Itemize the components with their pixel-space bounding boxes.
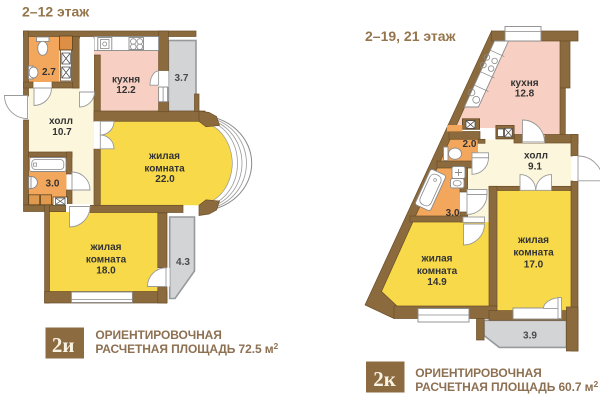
svg-text:комната: комната [86,255,127,266]
svg-text:комната: комната [144,164,185,175]
svg-text:жилая: жилая [421,254,453,265]
svg-text:9.1: 9.1 [528,162,542,173]
svg-text:22.0: 22.0 [155,174,175,185]
svg-text:3.9: 3.9 [523,331,537,342]
svg-text:2.0: 2.0 [463,139,477,150]
svg-text:3.0: 3.0 [446,208,460,219]
svg-text:14.9: 14.9 [427,277,447,288]
svg-text:2.7: 2.7 [42,67,56,78]
svg-text:РАСЧЕТНАЯ ПЛОЩАДЬ 72.5 м2: РАСЧЕТНАЯ ПЛОЩАДЬ 72.5 м2 [95,341,278,356]
svg-text:3.0: 3.0 [46,179,60,190]
svg-text:12.8: 12.8 [515,89,535,100]
svg-text:12.2: 12.2 [116,85,136,96]
svg-text:2–19, 21 этаж: 2–19, 21 этаж [365,28,457,44]
svg-text:3.7: 3.7 [175,73,189,84]
svg-text:холл: холл [524,151,548,162]
svg-text:18.0: 18.0 [96,266,116,277]
svg-text:17.0: 17.0 [524,260,544,271]
svg-text:РАСЧЕТНАЯ ПЛОЩАДЬ 60.7 м2: РАСЧЕТНАЯ ПЛОЩАДЬ 60.7 м2 [415,379,598,394]
svg-text:ОРИЕНТИРОВОЧНАЯ: ОРИЕНТИРОВОЧНАЯ [415,366,541,380]
svg-text:жилая: жилая [90,242,122,253]
svg-text:10.7: 10.7 [52,127,72,138]
svg-text:жилая: жилая [517,235,549,246]
svg-text:кухня: кухня [510,78,538,89]
svg-text:2и: 2и [52,333,75,357]
svg-text:кухня: кухня [112,75,140,86]
svg-text:ОРИЕНТИРОВОЧНАЯ: ОРИЕНТИРОВОЧНАЯ [95,328,221,342]
svg-text:2–12 этаж: 2–12 этаж [22,4,90,20]
svg-text:4.3: 4.3 [176,257,190,268]
svg-text:жилая: жилая [148,151,180,162]
svg-text:2к: 2к [373,367,397,391]
svg-text:комната: комната [513,248,554,259]
svg-text:комната: комната [417,266,458,277]
svg-text:холл: холл [49,116,73,127]
